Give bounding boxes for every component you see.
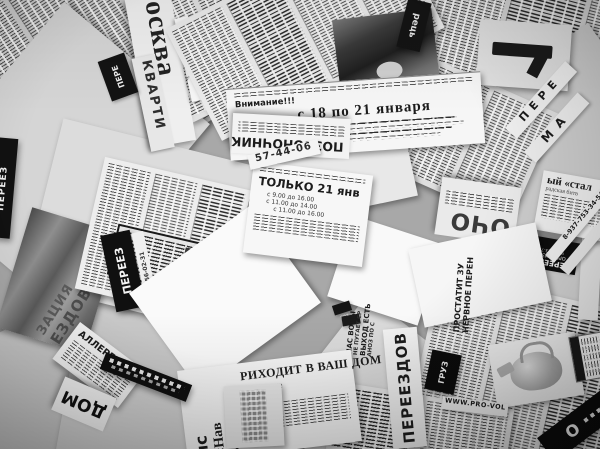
label-text: ПЕРЕЕЗ bbox=[0, 165, 10, 211]
vertical-slogans: НАС ВОДЫ НЕ ПУГАЕТ СР ВЫХОД ЕСТЬ АНОЗ ПО… bbox=[345, 302, 378, 357]
chip-text: ПЕРЕ bbox=[110, 64, 126, 89]
ad-tolko-21: ТОЛЬКО 21 янв с 9.00 до 16.00 с 11.00 до… bbox=[243, 161, 373, 267]
strip-text: рець bbox=[406, 12, 422, 39]
newspaper-collage-photo: ПЕРЕЕЗ ЗАЦИЯ ЕЗДОВ ПЕРЕЕЗ 56-02-31 осква… bbox=[0, 0, 600, 449]
illustration-building bbox=[223, 384, 284, 449]
headline-pereezdov: ПЕРЕЕЗДОВ bbox=[391, 332, 419, 445]
vertical-ls: лс bbox=[191, 434, 212, 449]
label-text: ПЕРЕЕЗ bbox=[112, 246, 135, 295]
building-shape bbox=[240, 389, 269, 442]
gruz-text: ГРУЗ bbox=[436, 360, 450, 384]
bar-letter-o: О bbox=[561, 419, 583, 442]
